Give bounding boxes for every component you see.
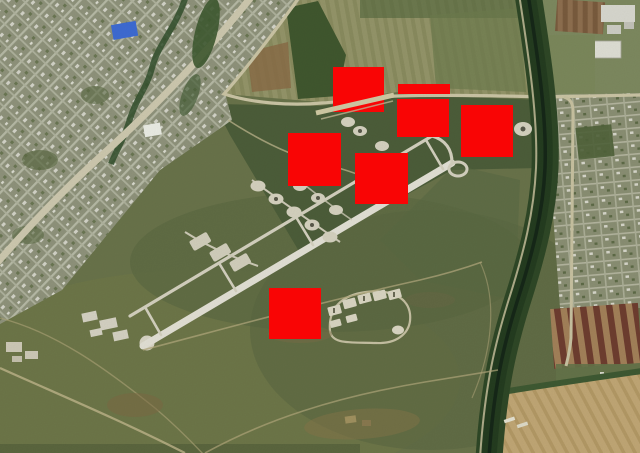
satellite-map-view — [0, 0, 640, 453]
strike-markers-layer — [0, 0, 640, 453]
marker-south-dispersal — [269, 288, 321, 339]
marker-north-apron — [397, 99, 449, 137]
marker-northeast-field — [461, 105, 513, 157]
marker-northwest-apron — [333, 67, 384, 112]
marker-north-strip — [398, 84, 450, 94]
marker-central-taxiway — [355, 153, 408, 204]
marker-west-apron — [288, 133, 341, 186]
